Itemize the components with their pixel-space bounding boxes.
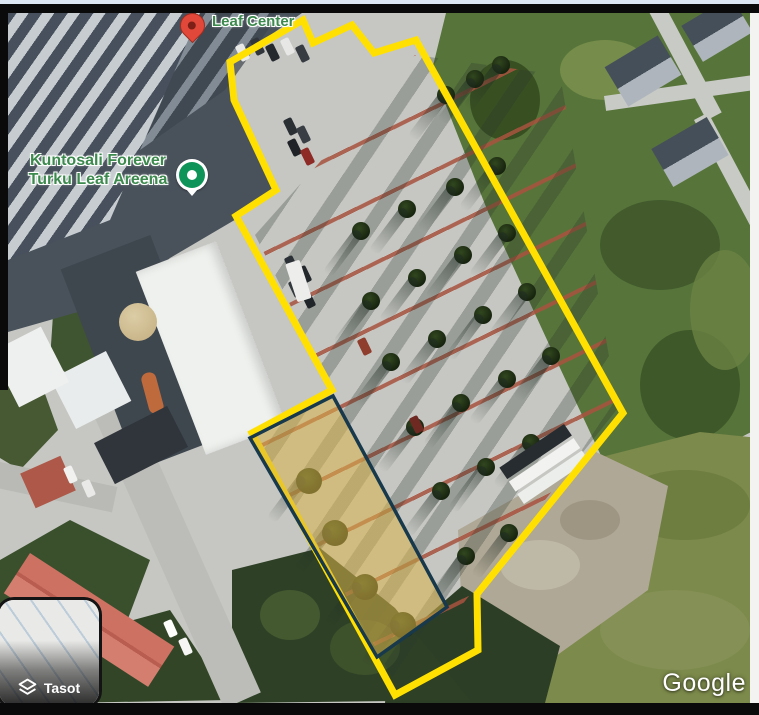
tree: [542, 347, 560, 365]
gravel-texture: [560, 500, 620, 540]
tree: [382, 353, 400, 371]
tree: [457, 547, 475, 565]
tree: [518, 283, 536, 301]
left-letterbox-bar: [0, 13, 8, 390]
tree: [500, 524, 518, 542]
tree: [488, 157, 506, 175]
top-letterbox-bar: [0, 4, 759, 13]
car: [283, 117, 299, 136]
tree: [390, 612, 416, 638]
google-watermark[interactable]: Google: [662, 669, 746, 698]
tree: [398, 200, 416, 218]
tree-highlight: [260, 590, 320, 640]
grass-patch: [690, 250, 759, 370]
bottom-letterbox-bar: [0, 703, 759, 715]
tree: [322, 520, 348, 546]
tree: [408, 269, 426, 287]
poi-label-leaf-center[interactable]: Leaf Center: [212, 13, 295, 30]
green-poi-pin-icon[interactable]: [176, 159, 208, 191]
car: [300, 147, 316, 166]
car: [296, 125, 312, 144]
car: [280, 37, 296, 56]
maps-screenshot: Leaf Center Kuntosali Forever Turku Leaf…: [0, 0, 759, 715]
layers-icon: [18, 678, 37, 697]
tree: [362, 292, 380, 310]
tree: [454, 246, 472, 264]
tree: [352, 222, 370, 240]
tree: [492, 56, 510, 74]
layers-button[interactable]: Tasot: [0, 597, 102, 709]
tree: [352, 574, 378, 600]
gravel-texture: [500, 540, 580, 590]
tree: [432, 482, 450, 500]
tree: [474, 306, 492, 324]
car: [265, 43, 281, 62]
tree: [498, 370, 516, 388]
tree: [452, 394, 470, 412]
tree: [428, 330, 446, 348]
right-edge-strip: [750, 13, 759, 703]
poi-label-gym[interactable]: Kuntosali Forever Turku Leaf Areena: [22, 151, 174, 189]
poi-label-line1: Kuntosali Forever: [22, 151, 174, 170]
map-canvas[interactable]: Leaf Center Kuntosali Forever Turku Leaf…: [0, 0, 759, 715]
pin-tail: [186, 189, 198, 196]
car: [287, 138, 303, 157]
tree: [498, 224, 516, 242]
tree: [296, 468, 322, 494]
poi-label-line2: Turku Leaf Areena: [22, 170, 174, 189]
storage-tank: [119, 303, 157, 341]
car: [295, 44, 311, 63]
layers-button-label: Tasot: [44, 680, 80, 696]
tree: [477, 458, 495, 476]
tree: [446, 178, 464, 196]
pin-dot: [187, 170, 197, 180]
